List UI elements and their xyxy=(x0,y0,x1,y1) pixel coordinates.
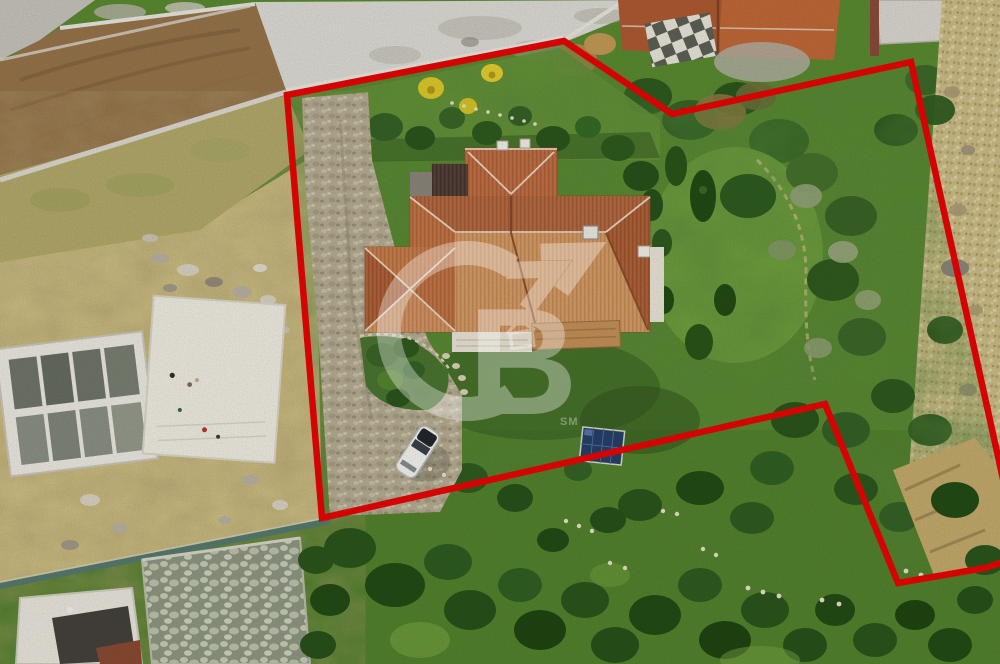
watermark-sm-label: SM xyxy=(560,416,579,428)
aerial-photo: B SM xyxy=(0,0,1000,664)
